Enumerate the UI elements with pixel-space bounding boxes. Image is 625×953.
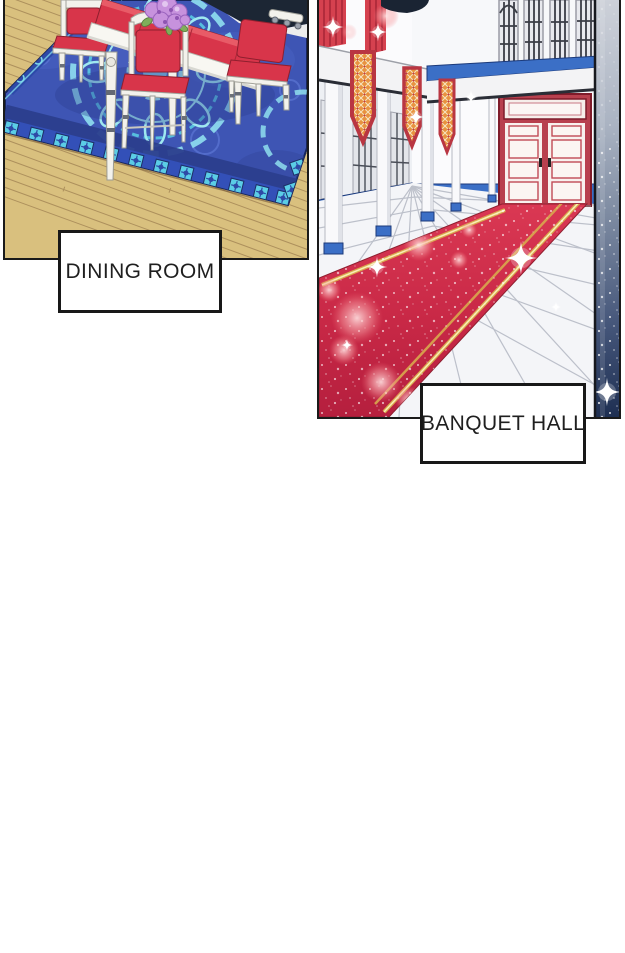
banquet-hall-illustration (319, 0, 619, 417)
starry-gradient-strip (593, 0, 619, 417)
dining-room-panel (3, 0, 309, 260)
banquet-hall-caption-box: BANQUET HALL (420, 383, 586, 464)
door-handle (548, 158, 551, 167)
red-double-door (499, 94, 591, 206)
dining-room-illustration (5, 0, 307, 258)
dining-room-caption-box: DINING ROOM (58, 230, 222, 313)
banquet-hall-caption-text: BANQUET HALL (421, 412, 585, 436)
banquet-hall-panel (317, 0, 621, 419)
dining-room-caption-text: DINING ROOM (65, 260, 214, 284)
comic-page: DINING ROOM BANQUET HALL (0, 0, 625, 953)
door-handle (539, 158, 542, 167)
